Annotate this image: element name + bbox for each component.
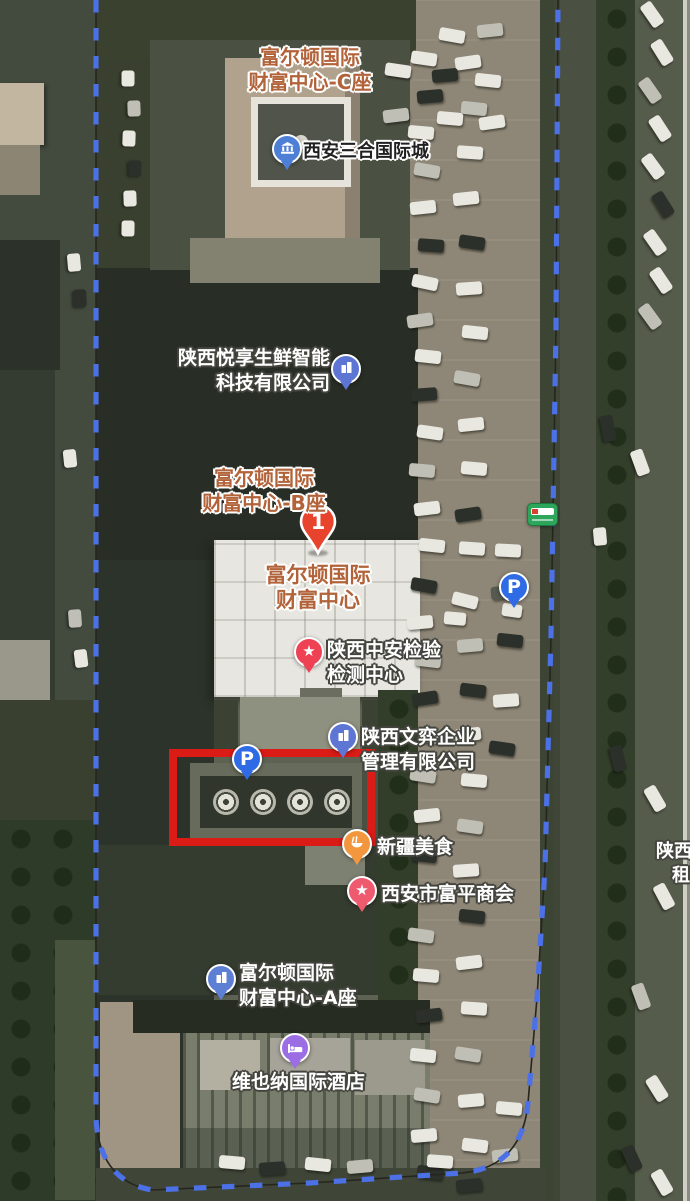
food-icon	[350, 835, 364, 854]
bus-stop-icon[interactable]	[527, 503, 558, 526]
label-selected-center[interactable]: 富尔顿国际财富中心	[218, 563, 418, 613]
poi-pin-yuexiang[interactable]	[329, 354, 363, 396]
label-yuexiang[interactable]: 陕西悦享生鲜智能科技有限公司	[108, 346, 330, 396]
poi-pin-fuping[interactable]: ★	[345, 876, 379, 918]
bank-icon	[280, 140, 295, 159]
label-vienna[interactable]: 维也纳国际酒店	[232, 1070, 365, 1094]
label-tower-b[interactable]: 富尔顿国际财富中心-B座	[164, 466, 364, 516]
label-sanhe[interactable]: 西安三合国际城	[303, 141, 429, 163]
label-tower-a[interactable]: 富尔顿国际财富中心-A座	[239, 961, 357, 1011]
poi-pin-sanhe[interactable]	[270, 134, 304, 176]
label-zhongan[interactable]: 陕西中安检验检测中心	[327, 638, 441, 688]
office-building-icon	[336, 728, 351, 747]
star-icon: ★	[302, 644, 315, 659]
parking-pin-right[interactable]: P	[497, 572, 531, 614]
star-icon: ★	[355, 883, 368, 898]
parking-pin-main[interactable]: P	[230, 744, 264, 786]
label-xinjiang[interactable]: 新疆美食	[377, 835, 453, 859]
poi-pin-wenyi[interactable]	[326, 722, 360, 764]
label-wenyi[interactable]: 陕西文弈企业管理有限公司	[361, 725, 475, 775]
parking-icon: P	[507, 578, 521, 597]
poi-pin-vienna[interactable]	[278, 1033, 312, 1075]
poi-pin-xinjiang[interactable]	[340, 829, 374, 871]
parking-icon: P	[240, 750, 254, 769]
label-tower-c[interactable]: 富尔顿国际财富中心-C座	[185, 45, 435, 95]
office-building-icon	[339, 360, 354, 379]
label-fuping[interactable]: 西安市富平商会	[381, 882, 514, 906]
bed-icon	[287, 1039, 303, 1058]
poi-pin-tower-a[interactable]	[204, 964, 238, 1006]
label-edge-line2[interactable]: 租	[672, 865, 690, 887]
satellite-map[interactable]: ★ P P ★ 1 富尔顿国际财富中心-	[0, 0, 690, 1201]
label-edge-line1[interactable]: 陕西	[656, 841, 690, 863]
poi-pin-zhongan[interactable]: ★	[292, 637, 326, 679]
office-building-icon	[214, 970, 229, 989]
